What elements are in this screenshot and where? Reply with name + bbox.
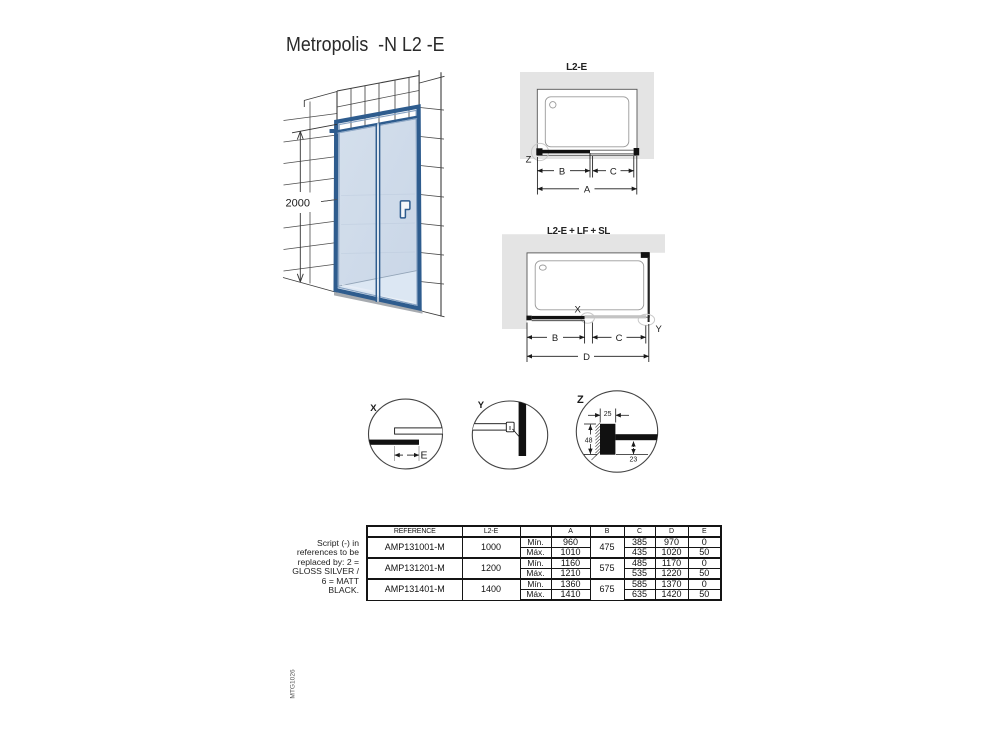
svg-text:E: E bbox=[421, 449, 428, 461]
svg-text:Y: Y bbox=[478, 400, 485, 411]
svg-text:25: 25 bbox=[604, 411, 612, 418]
svg-text:2000: 2000 bbox=[286, 198, 310, 210]
svg-text:A: A bbox=[584, 185, 591, 196]
svg-text:23: 23 bbox=[630, 457, 638, 464]
svg-text:Z: Z bbox=[577, 394, 584, 406]
svg-text:D: D bbox=[583, 352, 590, 363]
svg-text:C: C bbox=[610, 167, 617, 178]
svg-text:X: X bbox=[575, 305, 582, 316]
svg-text:48: 48 bbox=[585, 437, 593, 444]
svg-text:B: B bbox=[559, 167, 565, 178]
svg-text:Y: Y bbox=[656, 324, 663, 335]
svg-text:X: X bbox=[370, 403, 377, 414]
svg-text:Z: Z bbox=[526, 155, 532, 166]
svg-text:L2-E: L2-E bbox=[566, 62, 587, 73]
svg-text:C: C bbox=[616, 333, 623, 344]
svg-text:B: B bbox=[552, 333, 558, 344]
